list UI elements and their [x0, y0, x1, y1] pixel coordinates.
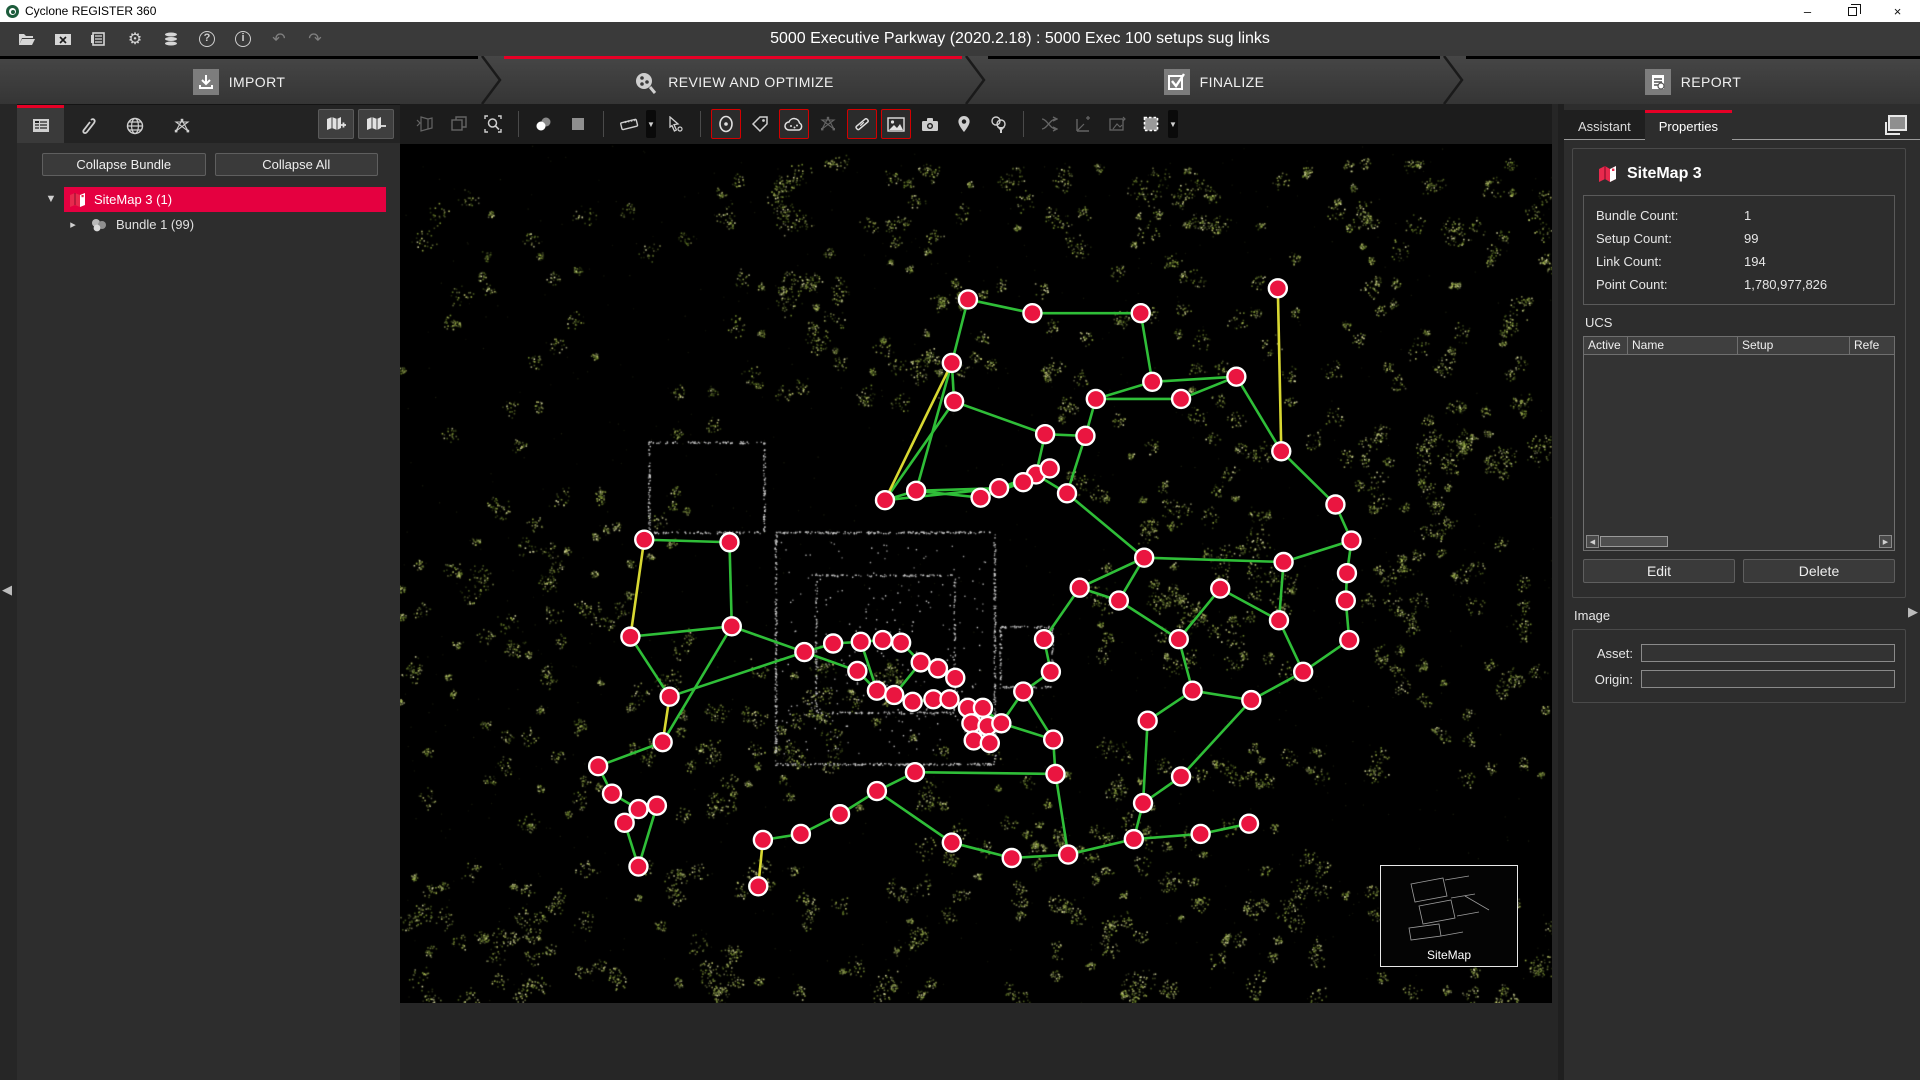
setup-node[interactable] [1340, 631, 1358, 649]
geotag-pin-button[interactable] [949, 109, 979, 139]
setup-node[interactable] [1337, 592, 1355, 610]
origin-label: Origin: [1583, 672, 1641, 687]
sitemap-thumbnail[interactable]: SiteMap [1380, 865, 1518, 967]
setup-node[interactable] [1170, 630, 1188, 648]
setup-node[interactable] [1110, 592, 1128, 610]
stat-label: Point Count: [1584, 277, 1744, 292]
zoom-region-button[interactable] [478, 109, 508, 139]
setup-node[interactable] [648, 797, 666, 815]
sitemap-properties-card: SiteMap 3 Bundle Count:1 Setup Count:99 … [1572, 148, 1906, 598]
setup-node[interactable] [589, 757, 607, 775]
setup-node[interactable] [945, 393, 963, 411]
restore-button[interactable] [1830, 0, 1875, 22]
setup-node[interactable] [1275, 553, 1293, 571]
setup-node[interactable] [1211, 580, 1229, 598]
setup-node[interactable] [1272, 442, 1290, 460]
undo-button[interactable]: ↶ [268, 28, 290, 50]
setup-link[interactable] [877, 791, 952, 842]
sitemap-thumbnail-label: SiteMap [1381, 948, 1517, 962]
setup-node[interactable] [981, 734, 999, 752]
setup-node[interactable] [1058, 484, 1076, 502]
duplicate-view-button[interactable] [444, 109, 474, 139]
stat-value: 194 [1744, 254, 1766, 269]
tab-import-label: IMPORT [229, 74, 286, 90]
tab-finalize-label: FINALIZE [1200, 74, 1265, 90]
document-title: 5000 Executive Parkway (2020.2.18) : 500… [770, 22, 1270, 56]
import-icon [193, 69, 219, 95]
expand-right-panel-handle[interactable]: ▶ [1908, 604, 1918, 620]
plane-target-button[interactable] [563, 109, 593, 139]
properties-title: SiteMap 3 [1627, 165, 1702, 183]
setup-link[interactable] [954, 402, 1045, 435]
paperclip-icon [80, 117, 96, 135]
setup-node[interactable] [1134, 794, 1152, 812]
image-visibility-toggle[interactable] [881, 109, 911, 139]
setup-node[interactable] [904, 693, 922, 711]
tab-review-label: REVIEW AND OPTIMIZE [668, 74, 834, 90]
setup-node[interactable] [1143, 373, 1161, 391]
stat-value: 1,780,977,826 [1744, 277, 1827, 292]
stat-value: 99 [1744, 231, 1758, 246]
setup-node[interactable] [1036, 425, 1054, 443]
setup-node[interactable] [1035, 630, 1053, 648]
tab-report-label: REPORT [1681, 74, 1742, 90]
caret-collapsed-icon[interactable]: ▸ [60, 218, 86, 231]
caret-expanded-icon[interactable]: ▼ [38, 187, 64, 212]
link-network-toggle[interactable] [813, 109, 843, 139]
asset-label: Asset: [1583, 646, 1641, 661]
setup-node[interactable] [720, 533, 738, 551]
app-title: Cyclone REGISTER 360 [25, 4, 156, 18]
workflow-tabbar: IMPORT REVIEW AND OPTIMIZE FINALIZE REPO… [0, 56, 1920, 104]
ucs-col-active[interactable]: Active [1584, 337, 1628, 354]
tree-item-sitemap[interactable]: ▼ SiteMap 3 (1) [38, 187, 386, 212]
pan-image-button[interactable] [1102, 109, 1132, 139]
setup-node[interactable] [892, 634, 910, 652]
ucs-col-setup[interactable]: Setup [1738, 337, 1850, 354]
region-select-button[interactable] [1136, 109, 1166, 139]
setup-node[interactable] [654, 733, 672, 751]
setup-node[interactable] [1042, 663, 1060, 681]
tree-item-bundle[interactable]: ▸ Bundle 1 (99) [38, 212, 386, 237]
setup-link[interactable] [1141, 313, 1153, 382]
panel-layout-icon [1882, 114, 1908, 136]
image-card: Asset: Origin: [1572, 629, 1906, 703]
globe-icon [126, 117, 144, 135]
info-button[interactable]: i [232, 28, 254, 50]
setup-node[interactable] [1014, 683, 1032, 701]
project-tree: ▼ SiteMap 3 (1) ▸ Bundle 1 (99) [38, 187, 386, 237]
tab-properties[interactable]: Properties [1645, 110, 1732, 140]
setup-link[interactable] [630, 540, 644, 637]
setup-node[interactable] [1023, 304, 1041, 322]
tree-item-label: Bundle 1 (99) [116, 217, 194, 232]
setup-node[interactable] [1192, 825, 1210, 843]
collapse-bundle-button[interactable]: Collapse Bundle [42, 153, 206, 176]
setup-node[interactable] [1294, 663, 1312, 681]
setup-node[interactable] [754, 831, 772, 849]
setup-link[interactable] [1119, 601, 1179, 640]
ucs-col-name[interactable]: Name [1628, 337, 1738, 354]
review-optimize-icon [632, 69, 658, 95]
setup-node[interactable] [1139, 712, 1157, 730]
setup-node[interactable] [868, 782, 886, 800]
setup-visibility-toggle[interactable] [711, 109, 741, 139]
setup-node[interactable] [1326, 496, 1344, 514]
properties-panel: Assistant Properties SiteMap 3 Bundle Co… [1558, 104, 1920, 1080]
setup-node[interactable] [1132, 304, 1150, 322]
folder-list-icon [32, 118, 50, 133]
close-project-button[interactable] [52, 28, 74, 50]
export-view-button[interactable] [410, 109, 440, 139]
setup-node[interactable] [912, 653, 930, 671]
swap-links-button[interactable] [1034, 109, 1064, 139]
setup-link[interactable] [1281, 451, 1335, 504]
project-tree-panel: Collapse Bundle Collapse All ▼ SiteMap 3… [17, 104, 400, 1080]
redo-button[interactable]: ↷ [304, 28, 326, 50]
tab-separator [478, 56, 504, 104]
setup-node[interactable] [1184, 682, 1202, 700]
setup-node[interactable] [629, 800, 647, 818]
region-select-dropdown[interactable]: ▼ [1168, 110, 1178, 138]
left-panel-tabstrip [17, 105, 400, 143]
open-project-button[interactable] [16, 28, 38, 50]
measure-tool-button[interactable] [614, 109, 644, 139]
setup-link[interactable] [1067, 493, 1144, 557]
ucs-section-label: UCS [1585, 315, 1895, 330]
setup-node[interactable] [1003, 849, 1021, 867]
setup-node[interactable] [992, 714, 1010, 732]
close-button[interactable]: × [1875, 0, 1920, 22]
setup-node[interactable] [876, 491, 894, 509]
report-icon [1645, 69, 1671, 95]
storage-database-button[interactable] [160, 28, 182, 50]
setup-node[interactable] [946, 669, 964, 687]
setup-filter-button[interactable] [983, 109, 1013, 139]
tab-assistant[interactable]: Assistant [1564, 110, 1645, 139]
setup-link[interactable] [1143, 721, 1148, 803]
ucs-col-reference[interactable]: Refe [1850, 337, 1894, 354]
remove-sitemap-button[interactable] [358, 109, 394, 139]
tab-separator [1440, 56, 1466, 104]
sitemap-icon [68, 192, 88, 208]
setup-link[interactable] [630, 626, 731, 636]
setup-node[interactable] [723, 617, 741, 635]
setup-link[interactable] [663, 626, 732, 742]
minimize-button[interactable]: – [1785, 0, 1830, 22]
setup-node[interactable] [868, 682, 886, 700]
collapse-left-panel-handle[interactable]: ◀ [2, 582, 12, 598]
origin-input[interactable] [1641, 670, 1895, 688]
camera-button[interactable] [915, 109, 945, 139]
setup-link[interactable] [1278, 288, 1281, 451]
pointcloud-viewport[interactable]: SiteMap [400, 145, 1552, 1003]
bundle-icon [90, 217, 110, 233]
ucs-delete-button[interactable]: Delete [1743, 559, 1895, 583]
setup-node[interactable] [943, 834, 961, 852]
scroll-left-icon[interactable]: ◀ [1586, 535, 1599, 548]
setup-node[interactable] [621, 628, 639, 646]
setup-node[interactable] [792, 825, 810, 843]
setup-node[interactable] [749, 877, 767, 895]
setup-link[interactable] [732, 626, 805, 652]
stat-label: Link Count: [1584, 254, 1744, 269]
project-settings-button[interactable] [88, 28, 110, 50]
setup-node[interactable] [943, 354, 961, 372]
setup-link[interactable] [915, 772, 1056, 774]
asset-input[interactable] [1641, 644, 1895, 662]
panel-layout-button[interactable] [1878, 112, 1912, 138]
collapse-all-button[interactable]: Collapse All [215, 153, 379, 176]
setup-node[interactable] [1269, 279, 1287, 297]
setup-node[interactable] [1338, 564, 1356, 582]
tab-link-network[interactable] [158, 105, 205, 143]
setup-node[interactable] [852, 633, 870, 651]
app-logo-icon [6, 5, 19, 18]
left-gutter: ◀ [0, 104, 17, 1080]
setup-link[interactable] [1284, 541, 1352, 562]
scroll-right-icon[interactable]: ▶ [1879, 535, 1892, 548]
apply-ucs-button[interactable] [1068, 109, 1098, 139]
setup-node[interactable] [1046, 765, 1064, 783]
setup-link[interactable] [644, 540, 729, 543]
settings-gear-button[interactable]: ⚙ [124, 28, 146, 50]
restore-icon [1848, 7, 1857, 16]
stat-label: Setup Count: [1584, 231, 1744, 246]
setup-node[interactable] [1172, 390, 1190, 408]
setup-node[interactable] [1343, 532, 1361, 550]
add-sitemap-button[interactable] [318, 109, 354, 139]
setup-link[interactable] [1055, 774, 1068, 855]
ucs-edit-button[interactable]: Edit [1583, 559, 1735, 583]
setup-link[interactable] [630, 637, 669, 697]
setup-node[interactable] [1125, 830, 1143, 848]
setup-link[interactable] [1236, 377, 1281, 452]
pick-point-button[interactable] [660, 109, 690, 139]
setup-node[interactable] [1270, 611, 1288, 629]
image-section-label: Image [1574, 608, 1906, 623]
link-visibility-toggle[interactable] [847, 109, 877, 139]
setup-node[interactable] [1087, 390, 1105, 408]
setup-node[interactable] [972, 489, 990, 507]
cyclone-register-360-window: Cyclone REGISTER 360 – × ⚙ ? i ↶ ↷ [0, 0, 1920, 1080]
setup-node[interactable] [1172, 767, 1190, 785]
setup-node[interactable] [906, 763, 924, 781]
setup-node[interactable] [1014, 473, 1032, 491]
setup-node[interactable] [885, 686, 903, 704]
setup-node[interactable] [824, 634, 842, 652]
setup-node[interactable] [1135, 549, 1153, 567]
tab-report[interactable]: REPORT [1466, 56, 1920, 104]
setup-node[interactable] [635, 531, 653, 549]
setup-node[interactable] [616, 814, 634, 832]
tab-attachments[interactable] [64, 105, 111, 143]
sitemap-icon [1597, 165, 1619, 183]
measure-dropdown[interactable]: ▼ [646, 110, 656, 138]
setup-node[interactable] [1044, 731, 1062, 749]
setup-node[interactable] [831, 805, 849, 823]
setup-node[interactable] [929, 659, 947, 677]
setup-node[interactable] [1227, 368, 1245, 386]
setup-node[interactable] [1071, 579, 1089, 597]
ucs-horizontal-scrollbar[interactable]: ◀ ▶ [1586, 535, 1892, 548]
setup-node[interactable] [629, 858, 647, 876]
setup-node[interactable] [603, 785, 621, 803]
help-icon: ? [199, 31, 215, 47]
setup-node[interactable] [1076, 427, 1094, 445]
setup-node[interactable] [1041, 459, 1059, 477]
main-toolbar: ⚙ ? i ↶ ↷ 5000 Executive Parkway (2020.2… [0, 22, 1920, 56]
map-minus-icon [366, 116, 386, 132]
stat-value: 1 [1744, 208, 1751, 223]
canvas-toolbar: ▼ [400, 104, 1552, 145]
setup-link[interactable] [1181, 700, 1251, 776]
scrollbar-thumb[interactable] [1600, 536, 1668, 547]
sitemap-view: ▼ [400, 104, 1552, 1080]
ucs-table[interactable]: Active Name Setup Refe ◀ ▶ [1583, 336, 1895, 551]
setup-node[interactable] [795, 643, 813, 661]
setup-node[interactable] [848, 662, 866, 680]
map-plus-icon [326, 116, 346, 132]
titlebar: Cyclone REGISTER 360 – × [0, 0, 1920, 22]
tab-geolocation[interactable] [111, 105, 158, 143]
tab-project-explorer[interactable] [17, 105, 64, 143]
help-button[interactable]: ? [196, 28, 218, 50]
setup-node[interactable] [874, 631, 892, 649]
setup-link[interactable] [598, 742, 663, 766]
setup-node[interactable] [1059, 846, 1077, 864]
finalize-icon [1164, 69, 1190, 95]
tab-import[interactable]: IMPORT [0, 56, 478, 104]
setup-node[interactable] [941, 690, 959, 708]
setup-link[interactable] [1144, 558, 1283, 562]
network-star-icon [173, 117, 191, 135]
pointcloud-visibility-toggle[interactable] [779, 109, 809, 139]
info-icon: i [235, 31, 251, 47]
tab-finalize[interactable]: FINALIZE [988, 56, 1440, 104]
label-visibility-toggle[interactable] [745, 109, 775, 139]
setup-node[interactable] [1242, 691, 1260, 709]
setup-node[interactable] [959, 290, 977, 308]
tab-separator [962, 56, 988, 104]
tree-item-label: SiteMap 3 (1) [94, 192, 172, 207]
setup-link[interactable] [729, 542, 731, 626]
main-area: ◀ [0, 104, 1920, 1080]
setup-node[interactable] [907, 482, 925, 500]
sitemap-stats: Bundle Count:1 Setup Count:99 Link Count… [1583, 195, 1895, 305]
sphere-targets-button[interactable] [529, 109, 559, 139]
setup-node[interactable] [974, 699, 992, 717]
setup-node[interactable] [990, 479, 1008, 497]
setup-link[interactable] [670, 652, 805, 697]
setup-node[interactable] [661, 688, 679, 706]
tab-review-and-optimize[interactable]: REVIEW AND OPTIMIZE [504, 56, 962, 104]
stat-label: Bundle Count: [1584, 208, 1744, 223]
setup-node[interactable] [1240, 815, 1258, 833]
